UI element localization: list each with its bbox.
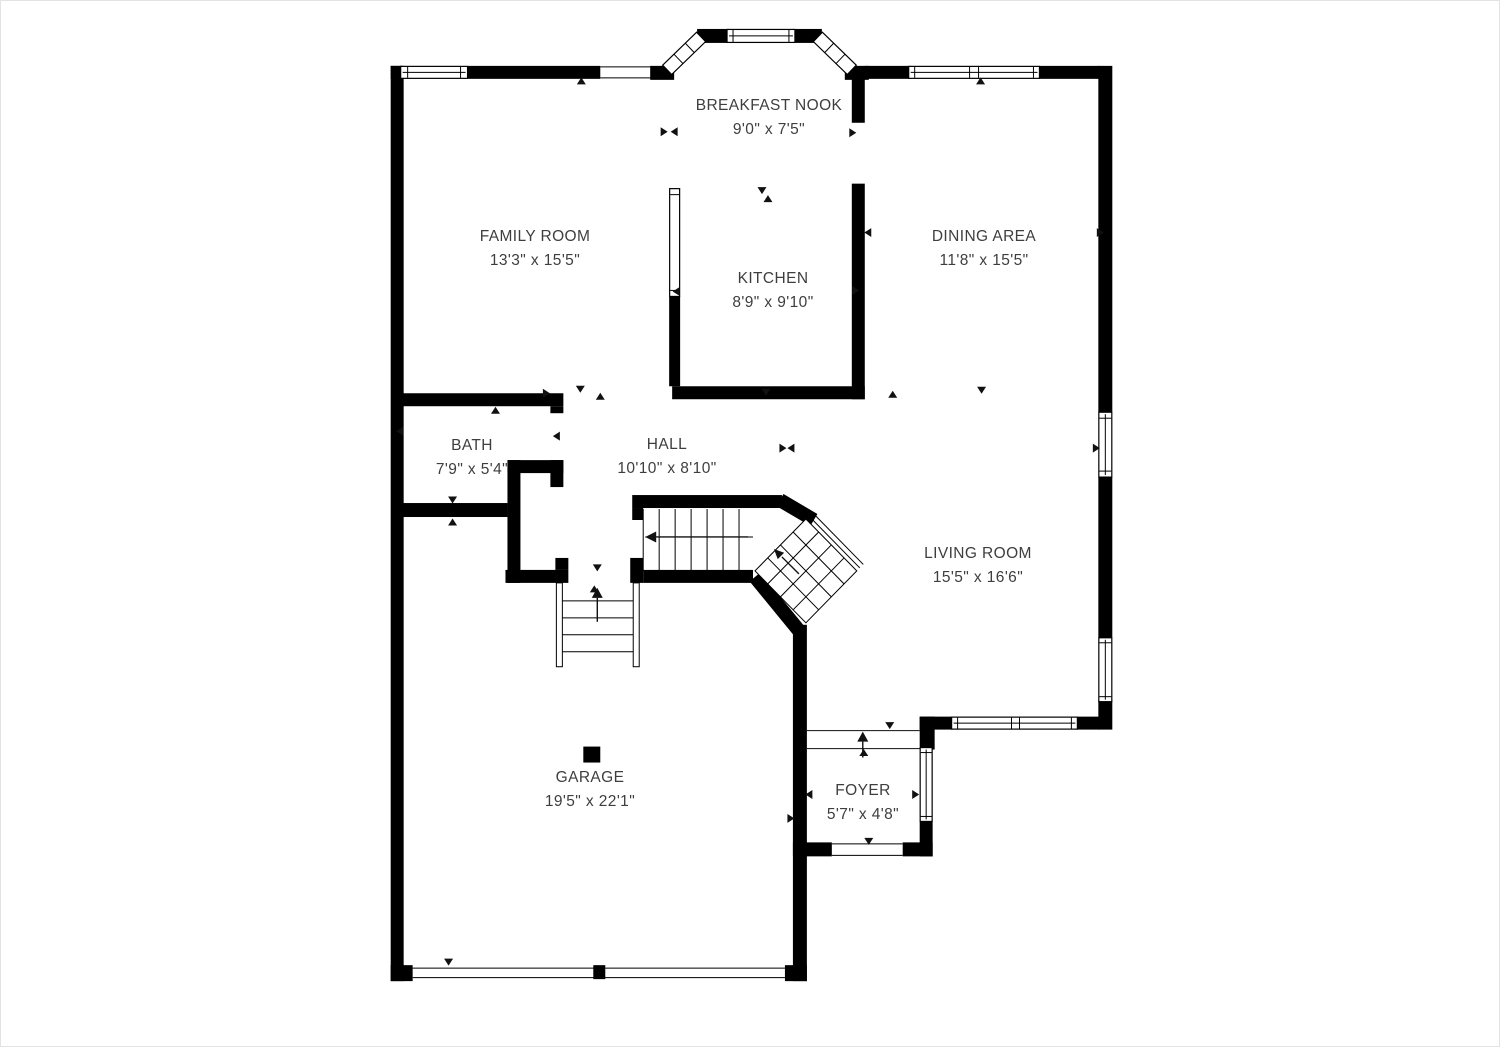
- room-label-dining-area: DINING AREA 11'8" x 15'5": [932, 225, 1036, 273]
- garage-door-line: [413, 965, 785, 979]
- room-name: BATH: [436, 434, 508, 458]
- window-family-room: [401, 66, 468, 78]
- room-label-bath: BATH 7'9" x 5'4": [436, 434, 508, 482]
- room-dimensions: 9'0" x 7'5": [696, 118, 843, 142]
- window-bay-left: [663, 32, 706, 74]
- room-name: KITCHEN: [732, 267, 813, 291]
- window-living-right: [1099, 638, 1112, 702]
- room-name: DINING AREA: [932, 225, 1036, 249]
- room-dimensions: 11'8" x 15'5": [932, 249, 1036, 273]
- window-living-bottom: [952, 717, 1078, 729]
- window-bay-right: [813, 32, 856, 74]
- room-label-kitchen: KITCHEN 8'9" x 9'10": [732, 267, 813, 315]
- room-name: LIVING ROOM: [924, 542, 1032, 566]
- room-name: FOYER: [827, 779, 899, 803]
- room-dimensions: 8'9" x 9'10": [732, 291, 813, 315]
- kitchen-pass-through: [670, 189, 680, 297]
- floor-plan-page: BREAKFAST NOOK 9'0" x 7'5" FAMILY ROOM 1…: [0, 0, 1500, 1047]
- garage-stairs: [556, 583, 639, 667]
- floor-plan-drawing: [1, 1, 1499, 1046]
- room-dimensions: 7'9" x 5'4": [436, 458, 508, 482]
- room-dimensions: 10'10" x 8'10": [617, 457, 716, 481]
- room-name: BREAKFAST NOOK: [696, 94, 843, 118]
- window-dining: [909, 66, 1040, 78]
- room-name: GARAGE: [545, 766, 635, 790]
- direction-markers: [396, 77, 1104, 965]
- room-name: HALL: [617, 433, 716, 457]
- garage-stairs-up-arrow: [592, 588, 603, 622]
- room-label-breakfast-nook: BREAKFAST NOOK 9'0" x 7'5": [696, 94, 843, 142]
- window-dining-right: [1099, 412, 1112, 477]
- support-post: [583, 747, 600, 763]
- windows: [401, 29, 1112, 821]
- room-label-hall: HALL 10'10" x 8'10": [617, 433, 716, 481]
- stairs-up-arrow: [645, 531, 748, 542]
- room-label-foyer: FOYER 5'7" x 4'8": [827, 779, 899, 827]
- staircase: [643, 509, 753, 571]
- room-dimensions: 5'7" x 4'8": [827, 803, 899, 827]
- room-label-family-room: FAMILY ROOM 13'3" x 15'5": [480, 225, 591, 273]
- direction-markers-up: [448, 77, 985, 756]
- room-label-living-room: LIVING ROOM 15'5" x 16'6": [924, 542, 1032, 590]
- room-label-garage: GARAGE 19'5" x 22'1": [545, 766, 635, 814]
- room-dimensions: 19'5" x 22'1": [545, 790, 635, 814]
- garage-door-post: [593, 965, 605, 979]
- room-name: FAMILY ROOM: [480, 225, 591, 249]
- room-dimensions: 13'3" x 15'5": [480, 249, 591, 273]
- window-foyer: [920, 748, 932, 822]
- room-dimensions: 15'5" x 16'6": [924, 566, 1032, 590]
- window-bay-center: [727, 29, 795, 42]
